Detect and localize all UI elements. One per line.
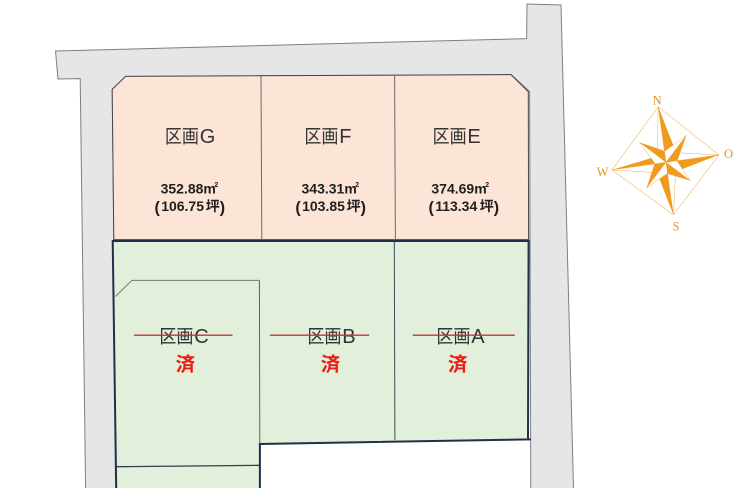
svg-text:113.34: 113.34 xyxy=(435,198,477,214)
svg-text:O: O xyxy=(724,147,733,161)
svg-text:F: F xyxy=(339,126,351,148)
svg-text:C: C xyxy=(194,326,208,348)
svg-text:343.31m: 343.31m xyxy=(302,181,357,197)
svg-text:(: ( xyxy=(429,199,435,216)
svg-text:2: 2 xyxy=(214,182,218,189)
svg-text:(: ( xyxy=(155,199,161,216)
svg-text:A: A xyxy=(471,326,485,348)
svg-text:): ) xyxy=(494,199,499,216)
svg-text:S: S xyxy=(673,220,680,234)
svg-text:2: 2 xyxy=(355,182,359,189)
svg-text:E: E xyxy=(467,126,480,148)
svg-text:B: B xyxy=(342,326,355,348)
svg-text:G: G xyxy=(200,126,216,148)
svg-text:374.69m: 374.69m xyxy=(431,181,486,197)
svg-text:106.75: 106.75 xyxy=(161,198,204,214)
svg-text:): ) xyxy=(220,199,225,216)
svg-text:): ) xyxy=(361,199,366,216)
svg-text:(: ( xyxy=(295,199,301,216)
svg-text:2: 2 xyxy=(485,182,489,189)
svg-text:352.88m: 352.88m xyxy=(161,181,216,197)
svg-text:N: N xyxy=(653,93,662,107)
svg-text:W: W xyxy=(597,165,609,179)
svg-text:103.85: 103.85 xyxy=(302,198,345,214)
